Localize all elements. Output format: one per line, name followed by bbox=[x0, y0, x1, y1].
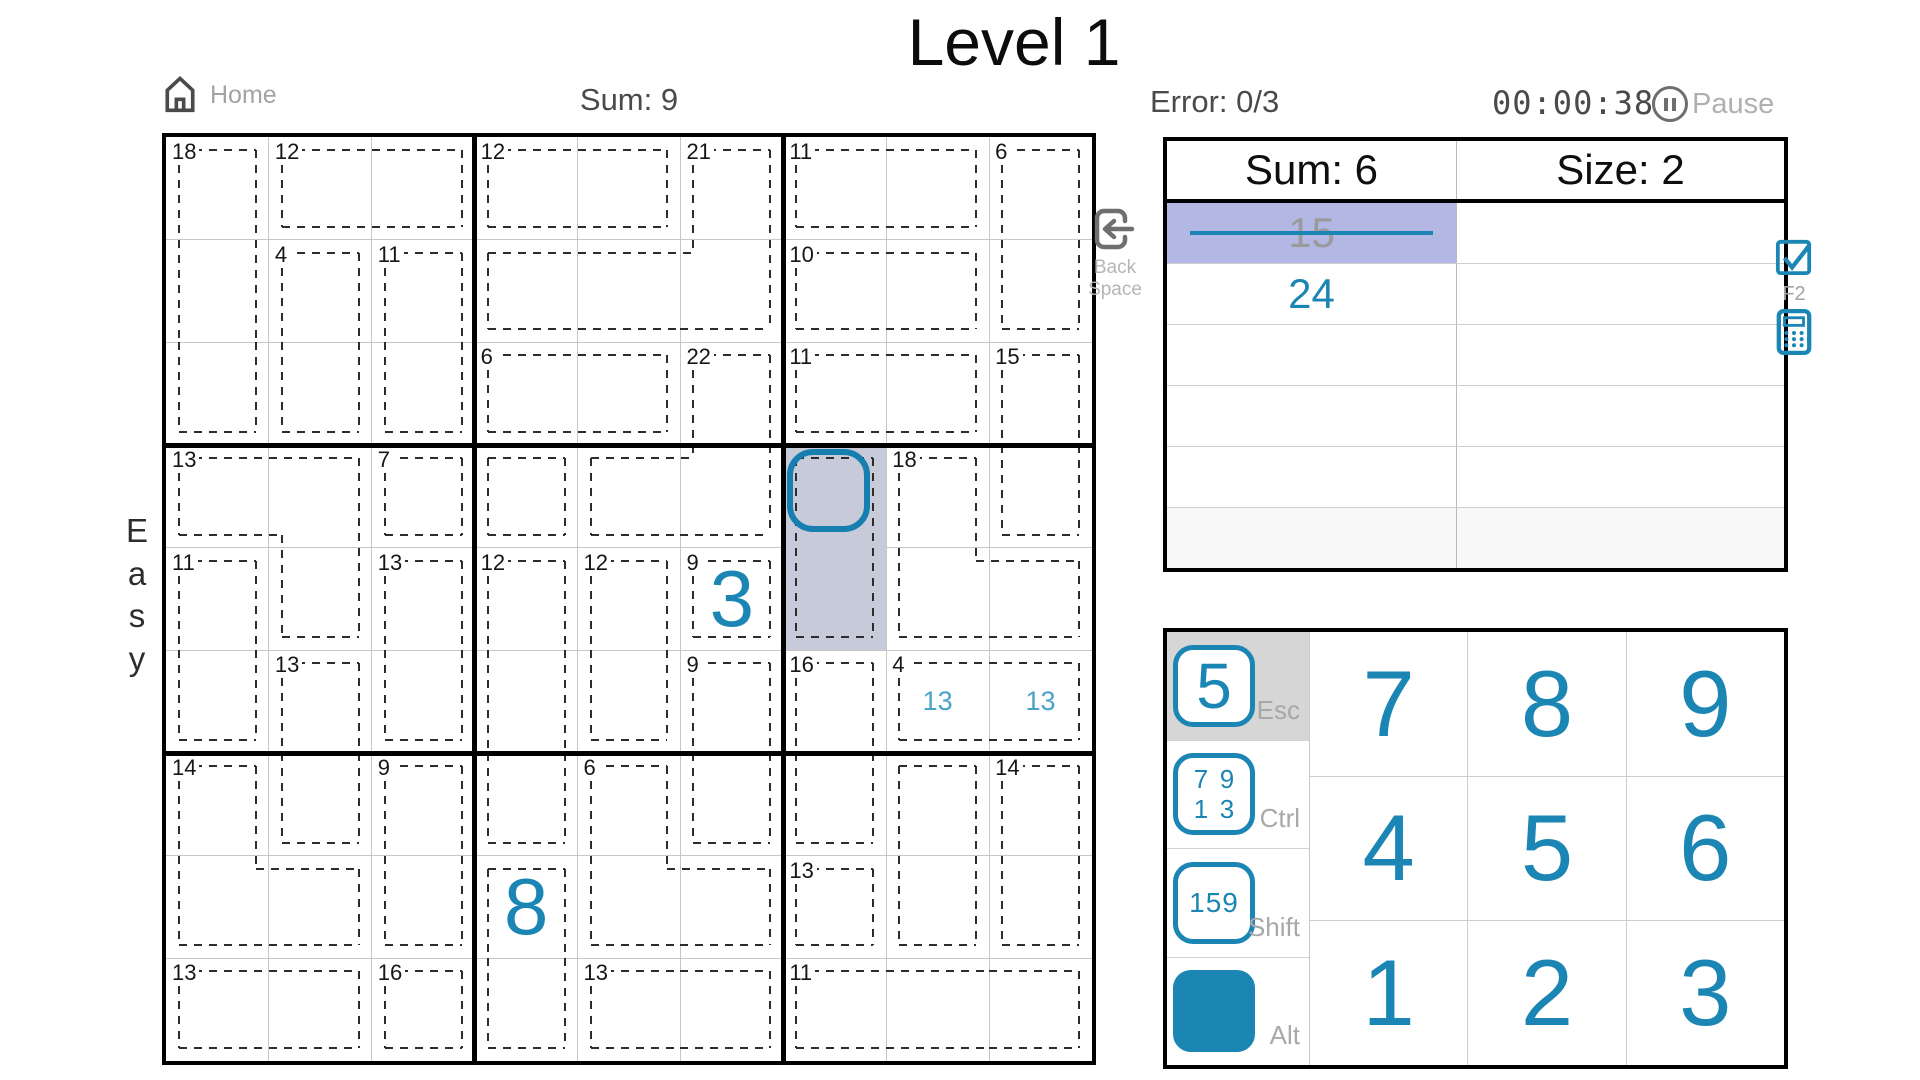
cage-border bbox=[461, 650, 463, 740]
cage-border bbox=[680, 328, 770, 330]
cage-border bbox=[487, 650, 489, 753]
cage-border bbox=[488, 534, 565, 536]
table-cell-sum bbox=[1167, 386, 1456, 446]
table-row[interactable] bbox=[1167, 507, 1784, 568]
cage-border bbox=[282, 252, 359, 254]
cage-border bbox=[488, 328, 578, 330]
cage-border bbox=[281, 342, 283, 432]
cage-border bbox=[282, 226, 372, 228]
cage-sum-label: 14 bbox=[169, 755, 199, 781]
cage-border bbox=[1078, 150, 1080, 240]
cage-border bbox=[693, 662, 770, 664]
numpad-digit-2[interactable]: 2 bbox=[1468, 921, 1625, 1065]
table-cell-sum: 15 bbox=[1167, 203, 1456, 263]
cage-border bbox=[255, 766, 257, 869]
error-counter: Error: 0/3 bbox=[1150, 84, 1279, 120]
cage-border bbox=[591, 739, 668, 741]
cage-border bbox=[796, 636, 873, 638]
cage-border bbox=[385, 739, 462, 741]
cell-digit: 8 bbox=[475, 856, 578, 959]
mode-key-label: Esc bbox=[1257, 695, 1300, 726]
cage-border bbox=[578, 328, 681, 330]
cage-border bbox=[281, 753, 283, 843]
cage-border bbox=[1001, 856, 1003, 946]
cage-border bbox=[255, 150, 257, 240]
cage-border bbox=[487, 253, 489, 330]
table-cell-size bbox=[1456, 325, 1784, 385]
cage-border bbox=[358, 548, 360, 638]
cage-border bbox=[796, 431, 886, 433]
cage-border bbox=[178, 342, 180, 432]
cage-sum-label: 9 bbox=[375, 755, 393, 781]
cage-border bbox=[385, 534, 462, 536]
cage-sum-label: 12 bbox=[478, 139, 508, 165]
cage-border bbox=[1002, 534, 1079, 536]
cage-border bbox=[1078, 856, 1080, 946]
cage-border bbox=[1078, 355, 1080, 445]
cage-border bbox=[255, 342, 257, 432]
cell-note: 13 bbox=[886, 650, 989, 753]
cage-border bbox=[769, 869, 771, 946]
cage-sum-label: 16 bbox=[375, 960, 405, 986]
table-cell-size bbox=[1456, 447, 1784, 507]
cage-border bbox=[872, 869, 874, 946]
pause-label: Pause bbox=[1692, 88, 1774, 121]
numpad-digit-6[interactable]: 6 bbox=[1627, 777, 1784, 921]
cage-border bbox=[680, 944, 770, 946]
cage-border bbox=[1001, 445, 1003, 535]
cage-border bbox=[461, 458, 463, 535]
cage-border bbox=[1002, 328, 1079, 330]
grid-line bbox=[989, 137, 990, 1061]
cage-border bbox=[488, 1047, 565, 1049]
cage-border bbox=[1001, 240, 1003, 330]
cage-border bbox=[358, 458, 360, 548]
cage-sum-label: 18 bbox=[169, 139, 199, 165]
cage-border bbox=[384, 342, 386, 432]
cage-border bbox=[488, 842, 565, 844]
numpad-digit-5[interactable]: 5 bbox=[1468, 777, 1625, 921]
cage-border bbox=[666, 561, 668, 651]
cage-border bbox=[564, 458, 566, 535]
cage-border bbox=[461, 971, 463, 1048]
cage-border bbox=[796, 226, 886, 228]
numpad-digit-8[interactable]: 8 bbox=[1468, 632, 1625, 776]
cage-border bbox=[488, 431, 578, 433]
cage-border bbox=[989, 1047, 1079, 1049]
cage-border bbox=[898, 548, 900, 638]
mode-key-ctrl[interactable]: 7913Ctrl bbox=[1167, 741, 1309, 850]
cage-border bbox=[796, 944, 873, 946]
cage-border bbox=[461, 856, 463, 946]
cage-border bbox=[975, 150, 977, 227]
mode-key-column: 5Esc7913Ctrl159ShiftAlt bbox=[1167, 632, 1309, 1065]
digit-keys: 789456123 bbox=[1310, 632, 1784, 1065]
cage-border bbox=[461, 561, 463, 651]
cage-border bbox=[461, 150, 463, 227]
cage-border bbox=[281, 535, 283, 638]
cage-border bbox=[385, 1047, 462, 1049]
cage-sum-label: 15 bbox=[992, 344, 1022, 370]
cage-border bbox=[269, 1047, 359, 1049]
cage-border bbox=[769, 663, 771, 753]
grid-line bbox=[166, 342, 1092, 343]
cage-border bbox=[769, 753, 771, 843]
cage-border bbox=[358, 971, 360, 1048]
cage-border bbox=[591, 457, 694, 459]
cage-border bbox=[899, 765, 976, 767]
cage-border bbox=[886, 1047, 989, 1049]
backspace-icon bbox=[1090, 206, 1140, 257]
cage-border bbox=[384, 856, 386, 946]
numpad-digit-9[interactable]: 9 bbox=[1627, 632, 1784, 776]
cage-border bbox=[179, 944, 269, 946]
cage-border bbox=[976, 560, 1079, 562]
numpad-digit-3[interactable]: 3 bbox=[1627, 921, 1784, 1065]
cage-sum-label: 21 bbox=[683, 139, 713, 165]
cage-sum-label: 13 bbox=[375, 550, 405, 576]
grid-line bbox=[268, 137, 269, 1061]
cage-border bbox=[975, 856, 977, 946]
cage-border bbox=[769, 971, 771, 1048]
cage-sum-label: 13 bbox=[581, 960, 611, 986]
table-row[interactable] bbox=[1167, 446, 1784, 507]
cage-border bbox=[692, 753, 694, 843]
cage-border bbox=[564, 753, 566, 843]
table-cell-sum bbox=[1167, 325, 1456, 385]
block-border bbox=[166, 443, 1092, 448]
cage-border bbox=[384, 650, 386, 740]
cage-border bbox=[372, 226, 462, 228]
cage-border bbox=[358, 753, 360, 843]
numpad-digit-1[interactable]: 1 bbox=[1310, 921, 1467, 1065]
cage-border bbox=[255, 650, 257, 740]
grid-line bbox=[166, 239, 1092, 240]
calculator-icon[interactable] bbox=[1775, 308, 1813, 361]
cage-sum-label: 11 bbox=[786, 960, 815, 986]
pause-button[interactable]: Pause bbox=[1652, 86, 1774, 122]
cage-sum-label: 12 bbox=[272, 139, 302, 165]
cage-border bbox=[899, 944, 976, 946]
app-window: Level 1 Home Sum: 9 Error: 0/3 00:00:38 … bbox=[0, 0, 1920, 1080]
table-cell-sum: 24 bbox=[1167, 264, 1456, 324]
cell-digit: 3 bbox=[680, 548, 783, 651]
cage-border bbox=[590, 458, 592, 535]
block-border bbox=[472, 137, 477, 1061]
cage-border bbox=[872, 548, 874, 638]
cage-border bbox=[872, 663, 874, 753]
cage-border bbox=[282, 842, 359, 844]
table-row[interactable] bbox=[1167, 324, 1784, 385]
mode-key-label: Alt bbox=[1270, 1020, 1300, 1051]
cage-border bbox=[693, 842, 770, 844]
cell-note: 13 bbox=[989, 650, 1092, 753]
cage-border bbox=[975, 458, 977, 561]
f2-toggle-group: F2 bbox=[1766, 238, 1822, 361]
cage-border bbox=[886, 252, 976, 254]
cage-border bbox=[564, 650, 566, 753]
cage-border bbox=[989, 970, 1079, 972]
cage-border bbox=[666, 766, 668, 869]
cage-border bbox=[769, 150, 771, 240]
cage-border bbox=[886, 970, 989, 972]
cage-sum-label: 6 bbox=[992, 139, 1010, 165]
cage-border bbox=[769, 240, 771, 330]
cage-border bbox=[872, 458, 874, 548]
cage-border bbox=[796, 842, 873, 844]
cage-border bbox=[487, 753, 489, 843]
corner-notes-icon: 7913 bbox=[1173, 753, 1255, 835]
cage-border bbox=[179, 739, 256, 741]
cage-border bbox=[680, 534, 770, 536]
table-row[interactable]: 15 bbox=[1167, 203, 1784, 263]
grid-line bbox=[166, 958, 1092, 959]
cage-border bbox=[385, 431, 462, 433]
mode-key-label: Ctrl bbox=[1260, 803, 1300, 834]
cage-border bbox=[385, 944, 462, 946]
page-title: Level 1 bbox=[908, 4, 1121, 80]
cage-border bbox=[461, 766, 463, 856]
cage-combinations-table: Sum: 6 Size: 2 1524 bbox=[1163, 137, 1788, 572]
cage-sum-label: 12 bbox=[478, 550, 508, 576]
cage-border bbox=[564, 958, 566, 1048]
cage-border bbox=[886, 226, 976, 228]
mode-key-label: Shift bbox=[1248, 912, 1300, 943]
selection-cursor[interactable] bbox=[787, 449, 870, 532]
cage-sum-label: 11 bbox=[786, 344, 815, 370]
cage-border bbox=[667, 868, 770, 870]
cage-border bbox=[872, 753, 874, 843]
cage-border bbox=[666, 650, 668, 740]
table-cell-size bbox=[1456, 508, 1784, 568]
cage-border bbox=[255, 561, 257, 651]
timer: 00:00:38 bbox=[1492, 84, 1654, 122]
cage-border bbox=[488, 354, 578, 356]
cage-border bbox=[899, 636, 989, 638]
cage-border bbox=[179, 534, 282, 536]
table-cell-sum bbox=[1167, 508, 1456, 568]
cage-border bbox=[282, 431, 359, 433]
cage-border bbox=[269, 457, 359, 459]
cage-border bbox=[975, 355, 977, 432]
grid-line bbox=[166, 855, 1092, 856]
color-mode-icon bbox=[1173, 970, 1255, 1052]
cage-border bbox=[796, 328, 886, 330]
cage-border bbox=[269, 970, 359, 972]
cage-sum-label: 11 bbox=[169, 550, 198, 576]
difficulty-label: Easy bbox=[120, 514, 154, 677]
cage-border bbox=[178, 240, 180, 343]
block-border bbox=[166, 751, 1092, 756]
cage-border bbox=[769, 445, 771, 535]
cage-border bbox=[487, 458, 489, 535]
cage-border bbox=[886, 354, 976, 356]
cage-border bbox=[578, 431, 668, 433]
cage-border bbox=[358, 663, 360, 753]
table-cell-size bbox=[1456, 386, 1784, 446]
grid-line bbox=[371, 137, 372, 1061]
number-pad: 5Esc7913Ctrl159ShiftAlt 789456123 bbox=[1163, 628, 1788, 1069]
cage-border bbox=[692, 150, 694, 253]
cage-border bbox=[578, 252, 694, 254]
cage-border bbox=[1002, 149, 1079, 151]
checkbox-checked-icon[interactable] bbox=[1775, 238, 1813, 281]
cage-sum-label: 4 bbox=[272, 242, 290, 268]
cage-sum-label: 10 bbox=[786, 242, 816, 268]
cage-border bbox=[795, 548, 797, 638]
cage-border bbox=[590, 856, 592, 946]
cage-border bbox=[1078, 766, 1080, 856]
cage-sum-label: 12 bbox=[581, 550, 611, 576]
table-row[interactable] bbox=[1167, 385, 1784, 446]
cage-border bbox=[488, 457, 565, 459]
cage-border bbox=[179, 431, 256, 433]
cage-border bbox=[1078, 561, 1080, 638]
cage-border bbox=[1078, 971, 1080, 1048]
cage-border bbox=[680, 1047, 770, 1049]
grid-line bbox=[166, 547, 1092, 548]
table-cell-size bbox=[1456, 203, 1784, 263]
cage-border bbox=[488, 252, 578, 254]
cage-border bbox=[898, 766, 900, 856]
cage-border bbox=[886, 431, 976, 433]
table-cell-size bbox=[1456, 264, 1784, 324]
cage-border bbox=[666, 150, 668, 227]
cage-border bbox=[269, 944, 359, 946]
table-header-size: Size: 2 bbox=[1456, 141, 1784, 199]
cage-border bbox=[769, 355, 771, 445]
cage-sum-label: 13 bbox=[786, 858, 816, 884]
cage-sum-label: 7 bbox=[375, 447, 393, 473]
cage-sum-label: 11 bbox=[375, 242, 404, 268]
cage-sum-label: 6 bbox=[581, 755, 599, 781]
cage-sum-label: 6 bbox=[478, 344, 496, 370]
backspace-label-line1: Back bbox=[1094, 257, 1136, 279]
cage-border bbox=[591, 1047, 681, 1049]
cage-border bbox=[358, 342, 360, 432]
cage-border bbox=[886, 149, 976, 151]
cage-border bbox=[385, 765, 462, 767]
backspace-label-line2: Space bbox=[1088, 279, 1142, 301]
numpad-digit-4[interactable]: 4 bbox=[1310, 777, 1467, 921]
cage-sum-label: 16 bbox=[786, 652, 816, 678]
cage-sum-label: 14 bbox=[992, 755, 1022, 781]
cage-border bbox=[179, 1047, 269, 1049]
cage-border bbox=[666, 355, 668, 432]
home-button[interactable]: Home bbox=[160, 72, 277, 119]
sudoku-grid[interactable]: 1812411122162211610111513718111312129139… bbox=[162, 133, 1096, 1065]
mode-key-esc[interactable]: 5Esc bbox=[1167, 632, 1309, 741]
cage-border bbox=[578, 149, 668, 151]
backspace-button[interactable]: Back Space bbox=[1089, 206, 1141, 301]
home-icon bbox=[160, 72, 200, 119]
cage-border bbox=[385, 457, 462, 459]
cage-sum-label: 11 bbox=[786, 139, 815, 165]
cage-border bbox=[488, 226, 578, 228]
cage-border bbox=[487, 958, 489, 1048]
cage-border bbox=[680, 970, 770, 972]
cage-sum-label: 13 bbox=[169, 447, 199, 473]
cage-sum-label: 18 bbox=[889, 447, 919, 473]
cage-border bbox=[564, 561, 566, 651]
cage-border bbox=[898, 856, 900, 946]
cage-border bbox=[255, 240, 257, 343]
digit-mode-icon: 5 bbox=[1173, 645, 1255, 727]
strikethrough-line bbox=[1190, 231, 1433, 235]
mode-key-shift[interactable]: 159Shift bbox=[1167, 849, 1309, 958]
f2-label: F2 bbox=[1782, 283, 1805, 306]
cage-border bbox=[591, 765, 668, 767]
cage-border bbox=[975, 766, 977, 856]
cage-border bbox=[578, 354, 668, 356]
cage-sum-status: Sum: 9 bbox=[580, 82, 678, 118]
mode-key-alt[interactable]: Alt bbox=[1167, 958, 1309, 1066]
cage-border bbox=[461, 253, 463, 343]
table-cell-sum bbox=[1167, 447, 1456, 507]
home-label: Home bbox=[210, 81, 277, 110]
cage-border bbox=[1002, 944, 1079, 946]
cage-border bbox=[461, 342, 463, 432]
cage-border bbox=[590, 650, 592, 740]
center-notes-icon: 159 bbox=[1173, 862, 1255, 944]
cage-border bbox=[989, 636, 1079, 638]
pause-icon bbox=[1652, 86, 1688, 122]
table-row[interactable]: 24 bbox=[1167, 263, 1784, 324]
cage-border bbox=[358, 869, 360, 946]
cage-border bbox=[178, 856, 180, 946]
cage-sum-label: 22 bbox=[683, 344, 713, 370]
cage-sum-label: 13 bbox=[169, 960, 199, 986]
cage-border bbox=[591, 944, 681, 946]
cage-border bbox=[178, 650, 180, 740]
cage-border bbox=[372, 149, 462, 151]
table-header-sum: Sum: 6 bbox=[1167, 141, 1456, 199]
block-border bbox=[781, 137, 786, 1061]
cage-border bbox=[358, 253, 360, 343]
cage-border bbox=[796, 1047, 886, 1049]
cage-sum-label: 13 bbox=[272, 652, 302, 678]
cage-border bbox=[886, 328, 976, 330]
numpad-digit-7[interactable]: 7 bbox=[1310, 632, 1467, 776]
cage-border bbox=[1078, 240, 1080, 330]
cage-border bbox=[282, 636, 359, 638]
cage-border bbox=[1078, 445, 1080, 535]
cage-border bbox=[578, 226, 668, 228]
cage-sum-label: 9 bbox=[683, 652, 701, 678]
cage-border bbox=[795, 753, 797, 843]
selected-cell[interactable] bbox=[783, 548, 886, 651]
cage-border bbox=[591, 534, 681, 536]
table-header-row: Sum: 6 Size: 2 bbox=[1167, 141, 1784, 203]
cage-border bbox=[256, 868, 359, 870]
cage-border bbox=[975, 253, 977, 330]
